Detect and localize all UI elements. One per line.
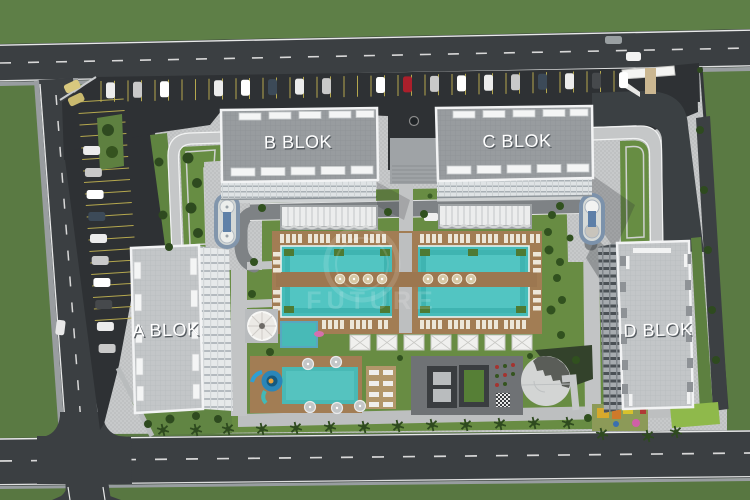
- svg-text:C BLOK: C BLOK: [482, 131, 551, 152]
- svg-text:D BLOK: D BLOK: [623, 319, 693, 341]
- svg-text:B BLOK: B BLOK: [264, 132, 332, 153]
- svg-text:A BLOK: A BLOK: [132, 319, 200, 341]
- svg-text:FUTURE: FUTURE: [306, 287, 437, 315]
